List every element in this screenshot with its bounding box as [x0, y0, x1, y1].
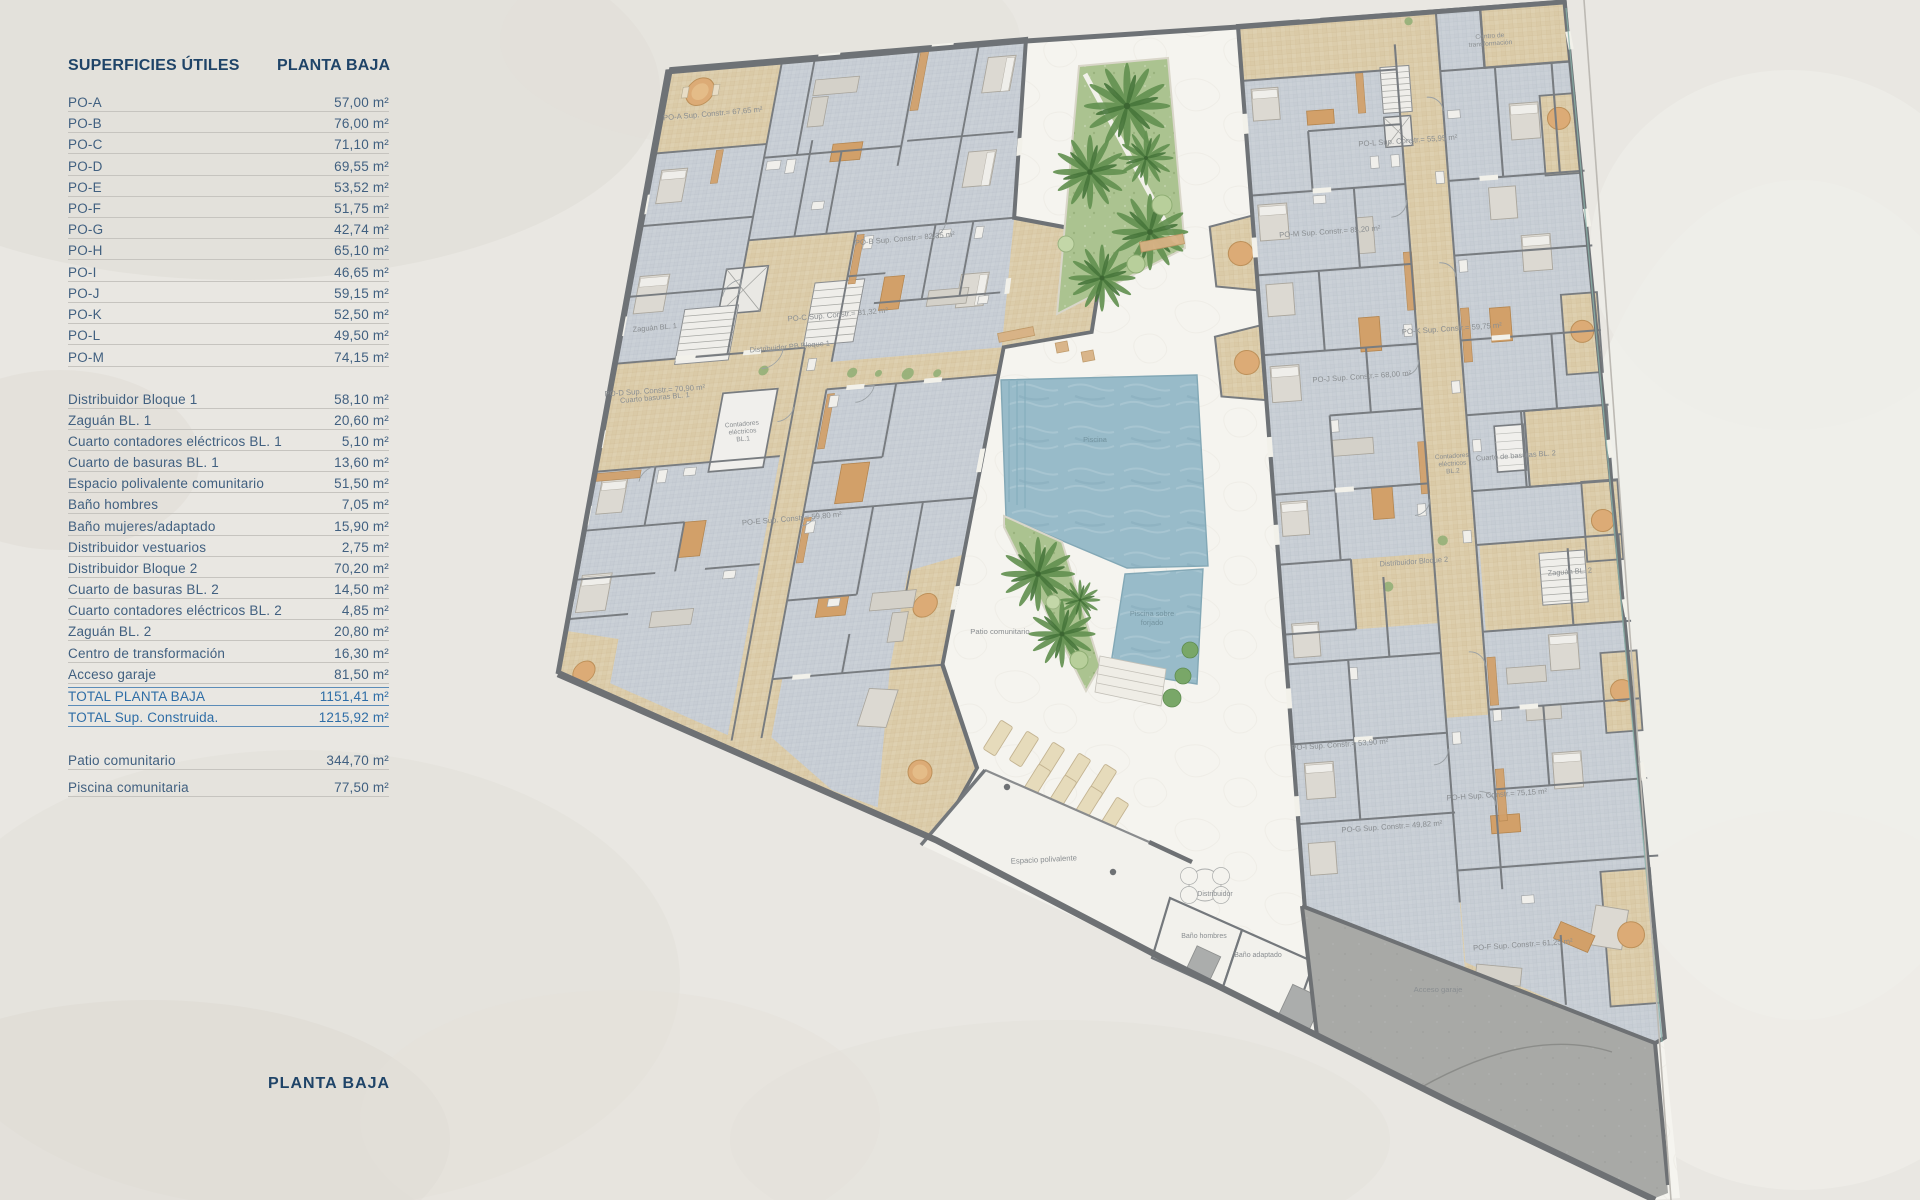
svg-text:Piscina: Piscina: [1083, 435, 1108, 444]
svg-text:Distribuidor: Distribuidor: [1197, 891, 1233, 898]
svg-text:Baño adaptado: Baño adaptado: [1234, 952, 1282, 959]
svg-text:Patio comunitario: Patio comunitario: [970, 627, 1029, 636]
svg-text:Baño hombres: Baño hombres: [1181, 933, 1227, 940]
svg-text:Acceso garaje: Acceso garaje: [1414, 985, 1463, 994]
